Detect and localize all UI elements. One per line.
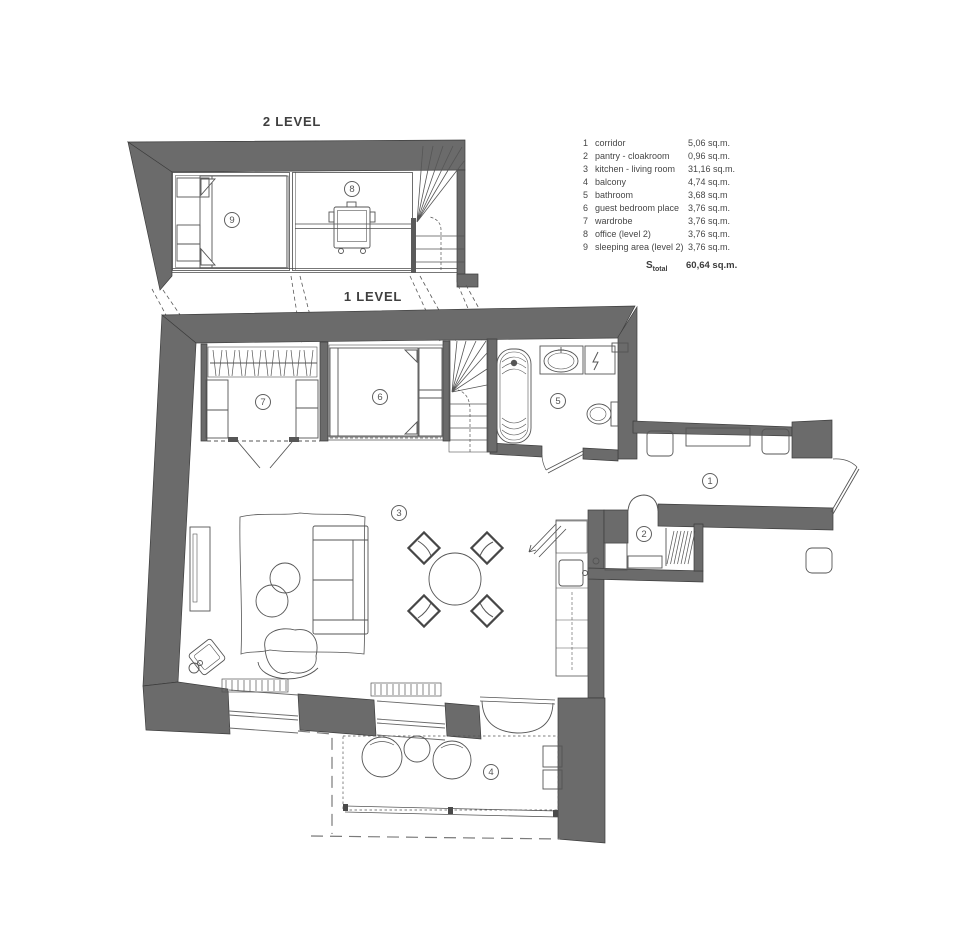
sofa [313, 526, 368, 634]
room-badge-balcony: 4 [483, 764, 499, 780]
entrance-door [831, 459, 859, 514]
legend-row: 4 balcony 4,74 sq.m. [576, 177, 776, 190]
legend-area: 31,16 sq.m. [688, 164, 735, 174]
kitchen-counter [529, 520, 588, 676]
bathroom-door [542, 451, 584, 473]
legend-number: 6 [576, 203, 588, 213]
legend-number: 9 [576, 242, 588, 252]
lightning-icon [593, 352, 598, 370]
legend-area: 5,06 sq.m. [688, 138, 730, 148]
legend-name: balcony [595, 177, 626, 187]
floor-plan-page: 2 LEVEL 1 LEVEL 1 2 3 4 5 6 7 8 9 1 corr… [0, 0, 960, 950]
legend: 1 corridor 5,06 sq.m. 2 pantry - cloakro… [576, 138, 776, 276]
room-badge-sleeping: 9 [224, 212, 240, 228]
legend-number: 2 [576, 151, 588, 161]
legend-area: 3,76 sq.m. [688, 203, 730, 213]
legend-number: 3 [576, 164, 588, 174]
bathtub [497, 349, 531, 443]
floor-plan-drawing [0, 0, 960, 950]
legend-area: 3,76 sq.m. [688, 216, 730, 226]
washer-electric-point [585, 346, 615, 374]
room-badge-office: 8 [344, 181, 360, 197]
legend-area: 3,68 sq.m [688, 190, 728, 200]
legend-row: 8 office (level 2) 3,76 sq.m. [576, 229, 776, 242]
room-badge-bathroom: 5 [550, 393, 566, 409]
legend-total-row: Stotal 60,64 sq.m. [576, 260, 776, 276]
legend-area: 3,76 sq.m. [688, 229, 730, 239]
legend-number: 1 [576, 138, 588, 148]
legend-row: 9 sleeping area (level 2) 3,76 sq.m. [576, 242, 776, 255]
legend-name: office (level 2) [595, 229, 651, 239]
tv-console [190, 527, 210, 611]
balcony [298, 731, 562, 839]
room-badge-wardrobe: 7 [255, 394, 271, 410]
legend-number: 7 [576, 216, 588, 226]
legend-number: 5 [576, 190, 588, 200]
level2-title: 2 LEVEL [237, 114, 347, 129]
stairs-level1 [449, 340, 488, 452]
radiators [222, 679, 441, 696]
toilet [587, 402, 618, 426]
level1-title: 1 LEVEL [318, 289, 428, 304]
rug [240, 513, 365, 654]
desk-chair [188, 638, 226, 676]
legend-name: corridor [595, 138, 626, 148]
legend-row: 2 pantry - cloakroom 0,96 sq.m. [576, 151, 776, 164]
legend-area: 3,76 sq.m. [688, 242, 730, 252]
legend-row: 3 kitchen - living room 31,16 sq.m. [576, 164, 776, 177]
ladder-icon [529, 524, 566, 557]
room-badge-guest-bed: 6 [372, 389, 388, 405]
legend-number: 4 [576, 177, 588, 187]
legend-name: wardrobe [595, 216, 633, 226]
office-desk [329, 202, 375, 254]
balcony-french-doors [480, 697, 555, 733]
dining-set [408, 532, 502, 626]
legend-area: 0,96 sq.m. [688, 151, 730, 161]
legend-row: 6 guest bedroom place 3,76 sq.m. [576, 203, 776, 216]
armchair [258, 629, 318, 679]
legend-name: pantry - cloakroom [595, 151, 670, 161]
legend-number: 8 [576, 229, 588, 239]
legend-name: kitchen - living room [595, 164, 675, 174]
legend-total-label: Stotal [646, 260, 667, 273]
coffee-tables [256, 563, 300, 617]
legend-row: 5 bathroom 3,68 sq.m [576, 190, 776, 203]
entrance-doormat [806, 548, 832, 573]
room-badge-kitchen: 3 [391, 505, 407, 521]
legend-row: 1 corridor 5,06 sq.m. [576, 138, 776, 151]
room-badge-corridor: 1 [702, 473, 718, 489]
legend-name: bathroom [595, 190, 633, 200]
legend-row: 7 wardrobe 3,76 sq.m. [576, 216, 776, 229]
legend-name: guest bedroom place [595, 203, 679, 213]
legend-area: 4,74 sq.m. [688, 177, 730, 187]
room-badge-pantry: 2 [636, 526, 652, 542]
legend-name: sleeping area (level 2) [595, 242, 684, 252]
legend-total-value: 60,64 sq.m. [686, 260, 737, 271]
sink [540, 346, 583, 374]
